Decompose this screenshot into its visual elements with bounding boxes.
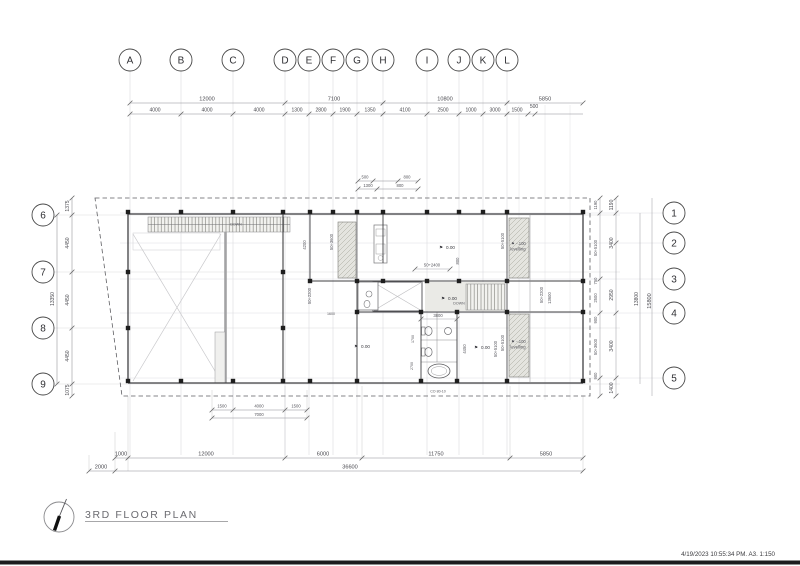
dimension-chain-bottom: 1500 4000 1500 7000 1000 12000 6000 1175… [87, 386, 586, 473]
dim-label: 50÷3600 [329, 233, 334, 250]
bubble-label: L [504, 56, 510, 67]
level-flag-icon: ⚑ [354, 344, 358, 349]
dim-label: 3800 [433, 313, 443, 318]
dimension-chain-mid-top: 500 800 1300 800 [356, 175, 421, 192]
drain-label: CO 80-10 [430, 390, 446, 394]
landing-outline [133, 233, 220, 250]
bubble-label: K [480, 56, 487, 67]
grid-lines [54, 71, 663, 455]
bubble-label: G [353, 56, 361, 67]
void-cross [133, 234, 221, 381]
dim-label: 4450 [462, 344, 467, 354]
dim-label: 11750 [428, 452, 443, 458]
dim-total-label: 13350 [50, 292, 56, 306]
dim-label: 4450 [65, 237, 71, 248]
bubble-label: 9 [40, 380, 46, 391]
dim-label: 1000 [115, 452, 127, 458]
dim-label: 800 [397, 183, 405, 188]
dim-label: 900 [593, 316, 598, 324]
stair-direction-label: DOWN [453, 302, 465, 306]
dim-label: 50÷5100 [500, 334, 505, 351]
level-flag-icon: ⚑ [511, 241, 515, 246]
dim-offset-label: 2000 [95, 465, 107, 471]
dim-total-label: 36600 [342, 465, 358, 471]
dim-label: 50÷3600 [593, 338, 598, 355]
stair-run-middle [466, 284, 505, 310]
dim-label: 4000 [149, 108, 160, 114]
dim-label: 800 [455, 257, 460, 265]
dim-label: 12000 [198, 452, 214, 458]
bubble-label: I [426, 56, 429, 67]
dim-label: 4000 [254, 404, 264, 409]
dim-label: 5850 [539, 97, 551, 103]
dim-label: 4450 [65, 350, 71, 361]
dim-label: 750 [593, 277, 598, 285]
dim-label: 500 [362, 175, 370, 180]
row-grid-bubbles-right [663, 202, 685, 389]
bubble-label: 2 [671, 239, 677, 250]
bathroom [421, 312, 457, 378]
bubble-label: 5 [671, 374, 677, 385]
dimension-chain-top: 12000 7100 10800 5850 4000 4000 4000 130… [128, 97, 586, 117]
balcony-strip-west [338, 222, 356, 278]
floor-plan-canvas: A B C D E F G H I J K L 6 7 8 9 1 2 3 4 … [0, 0, 800, 566]
dim-label: 800 [404, 175, 412, 180]
dim-label: 900 [593, 372, 598, 380]
dim-label: 1075 [65, 384, 71, 395]
dim-label: 6000 [317, 452, 329, 458]
dim-label: 500 [530, 104, 539, 110]
dim-label: 1350 [364, 108, 375, 114]
dim-label: 1700 [411, 335, 415, 343]
dim-label: 2500 [437, 108, 448, 114]
level-flag-icon: ⚑ [439, 245, 443, 250]
dim-label: 1300 [291, 108, 302, 114]
dim-label: 4000 [253, 108, 264, 114]
level-value: -.100 [516, 241, 526, 246]
dim-label: 1190 [593, 200, 598, 210]
drawing-sheet: A B C D E F G H I J K L 6 7 8 9 1 2 3 4 … [0, 0, 800, 566]
toilet-fixture [425, 348, 432, 357]
dim-label: 1300 [363, 183, 373, 188]
bubble-label: H [379, 56, 386, 67]
bubble-label: A [127, 56, 134, 67]
bubble-label: 3 [671, 275, 677, 286]
dim-label: 4450 [65, 294, 71, 305]
bubble-label: E [306, 56, 313, 67]
dim-label: 50÷5100 [500, 232, 505, 249]
level-value: -.100 [516, 339, 526, 344]
dim-label: 50÷5100 [493, 340, 498, 357]
dim-label: 1375 [65, 200, 71, 211]
dim-label: 1500 [217, 404, 227, 409]
dim-label: 1600 [327, 312, 335, 316]
dim-label: 3000 [489, 108, 500, 114]
shaft-closet [215, 332, 225, 383]
row-grid-labels-left: 6 7 8 9 [40, 211, 46, 391]
level-value: 0.00 [481, 345, 490, 350]
dim-label: 13600 [547, 292, 552, 304]
print-stamp: 4/19/2023 10:55:34 PM. A3. 1:150 [681, 551, 775, 558]
dimension-chain-left: 1375 4450 4450 4450 1075 13350 [50, 196, 74, 399]
level-flag-icon: ⚑ [511, 339, 515, 344]
dim-label: 2800 [315, 108, 326, 114]
level-value: 0.00 [448, 296, 457, 301]
dim-total-label: 15800 [647, 293, 653, 309]
dim-label: 1190 [609, 199, 615, 210]
bubble-label: 1 [671, 209, 677, 220]
level-note: levelling [510, 345, 526, 350]
level-flag-icon: ⚑ [441, 296, 445, 301]
bubble-label: 7 [40, 268, 46, 279]
stair-direction-label: DOWN [230, 223, 242, 227]
dim-label: 10800 [437, 97, 453, 103]
bubble-label: 4 [671, 309, 677, 320]
level-value: 0.00 [361, 344, 370, 349]
bubble-label: F [330, 56, 336, 67]
bubble-label: 6 [40, 211, 46, 222]
dim-label: 2950 [609, 289, 615, 300]
bubble-label: B [178, 56, 185, 67]
dim-label: 50÷2200 [307, 287, 312, 304]
dim-label: 50÷2200 [539, 286, 544, 303]
dim-label: 12000 [199, 97, 215, 103]
dim-label: 4000 [201, 108, 212, 114]
building-plan [126, 210, 585, 383]
dim-label: 50÷2400 [424, 263, 441, 268]
dim-label: 1900 [339, 108, 350, 114]
level-flag-icon: ⚑ [474, 345, 478, 350]
dim-label: 5850 [540, 452, 552, 458]
title-block: 3RD FLOOR PLAN [44, 499, 228, 532]
dim-label: 1500 [511, 108, 522, 114]
wc-room [358, 282, 378, 310]
dim-label: 7100 [328, 97, 340, 103]
dim-label: 4200 [302, 240, 307, 250]
dim-label: 1500 [291, 404, 301, 409]
dim-label: 2500 [593, 293, 598, 303]
bubble-label: J [457, 56, 462, 67]
dim-label: 1000 [465, 108, 476, 114]
wash-basin [445, 328, 452, 335]
level-note: levelling [510, 247, 526, 252]
dim-label: 3400 [609, 340, 615, 351]
dimension-chain-right: 1190 50÷5100 750 2500 900 50÷3600 900 11… [593, 196, 653, 399]
dim-label: 2700 [410, 362, 414, 370]
bubble-label: 8 [40, 324, 46, 335]
bubble-label: C [229, 56, 236, 67]
dim-label: 3400 [609, 237, 615, 248]
dim-label: 1400 [609, 382, 615, 393]
dim-label: 4100 [399, 108, 410, 114]
north-arrow-needle [60, 499, 67, 516]
drawing-title: 3RD FLOOR PLAN [85, 509, 198, 521]
north-arrow-needle-tip [55, 516, 60, 531]
dim-label: 50÷5100 [593, 239, 598, 256]
toilet-tank [422, 348, 426, 356]
dim-total-label: 7000 [254, 412, 264, 417]
bubble-label: D [281, 56, 288, 67]
dim-total-label: 13800 [634, 292, 640, 306]
sheet-border-bottom [0, 561, 800, 565]
level-value: 0.00 [446, 245, 455, 250]
